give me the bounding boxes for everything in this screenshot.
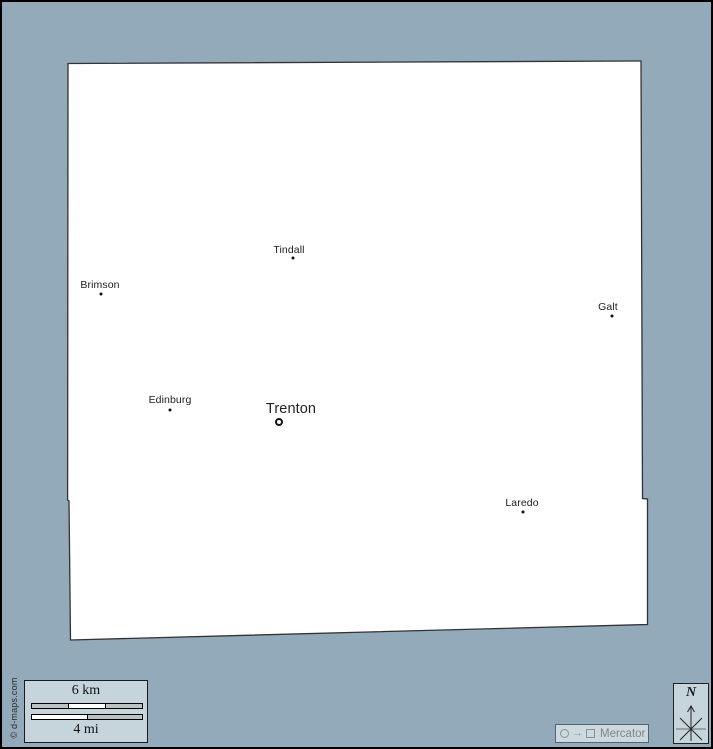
scale-bar-km — [31, 703, 143, 709]
north-label: N — [674, 684, 708, 701]
town-dot-icon — [100, 293, 103, 296]
town-label-brimson: Brimson — [80, 279, 119, 291]
scale-segment — [32, 704, 68, 708]
town-label-galt: Galt — [598, 301, 618, 313]
scale-bar-mi — [31, 714, 143, 720]
scale-mi-label: 4 mi — [25, 722, 147, 738]
globe-circle-icon — [560, 729, 569, 738]
compass-panel: N — [673, 683, 709, 744]
town-dot-icon — [522, 511, 525, 514]
town-dot-icon — [292, 257, 295, 260]
copyright-text: © d-maps.com — [9, 668, 21, 748]
town-label-tindall: Tindall — [273, 244, 304, 256]
map-canvas — [2, 2, 711, 747]
arrow-right-icon: → — [572, 728, 583, 739]
scale-bar-panel: 6 km 4 mi — [24, 680, 148, 743]
county-outline — [68, 61, 648, 640]
town-label-edinburg: Edinburg — [149, 394, 192, 406]
scale-segment — [105, 704, 142, 708]
projection-label: Mercator — [600, 728, 645, 740]
town-label-trenton: Trenton — [266, 401, 316, 417]
town-dot-icon — [169, 409, 172, 412]
projection-badge: → Mercator — [555, 724, 649, 743]
map-page: Tindall Brimson Galt Edinburg Trenton La… — [0, 0, 713, 749]
town-label-laredo: Laredo — [505, 497, 538, 509]
scale-segment — [32, 715, 87, 719]
town-dot-icon — [611, 315, 614, 318]
compass-rose-icon — [674, 701, 708, 743]
scale-segment — [68, 704, 105, 708]
scale-segment — [87, 715, 143, 719]
county-seat-ring-icon — [275, 418, 283, 426]
scale-km-label: 6 km — [25, 683, 147, 699]
flat-map-square-icon — [586, 729, 595, 738]
